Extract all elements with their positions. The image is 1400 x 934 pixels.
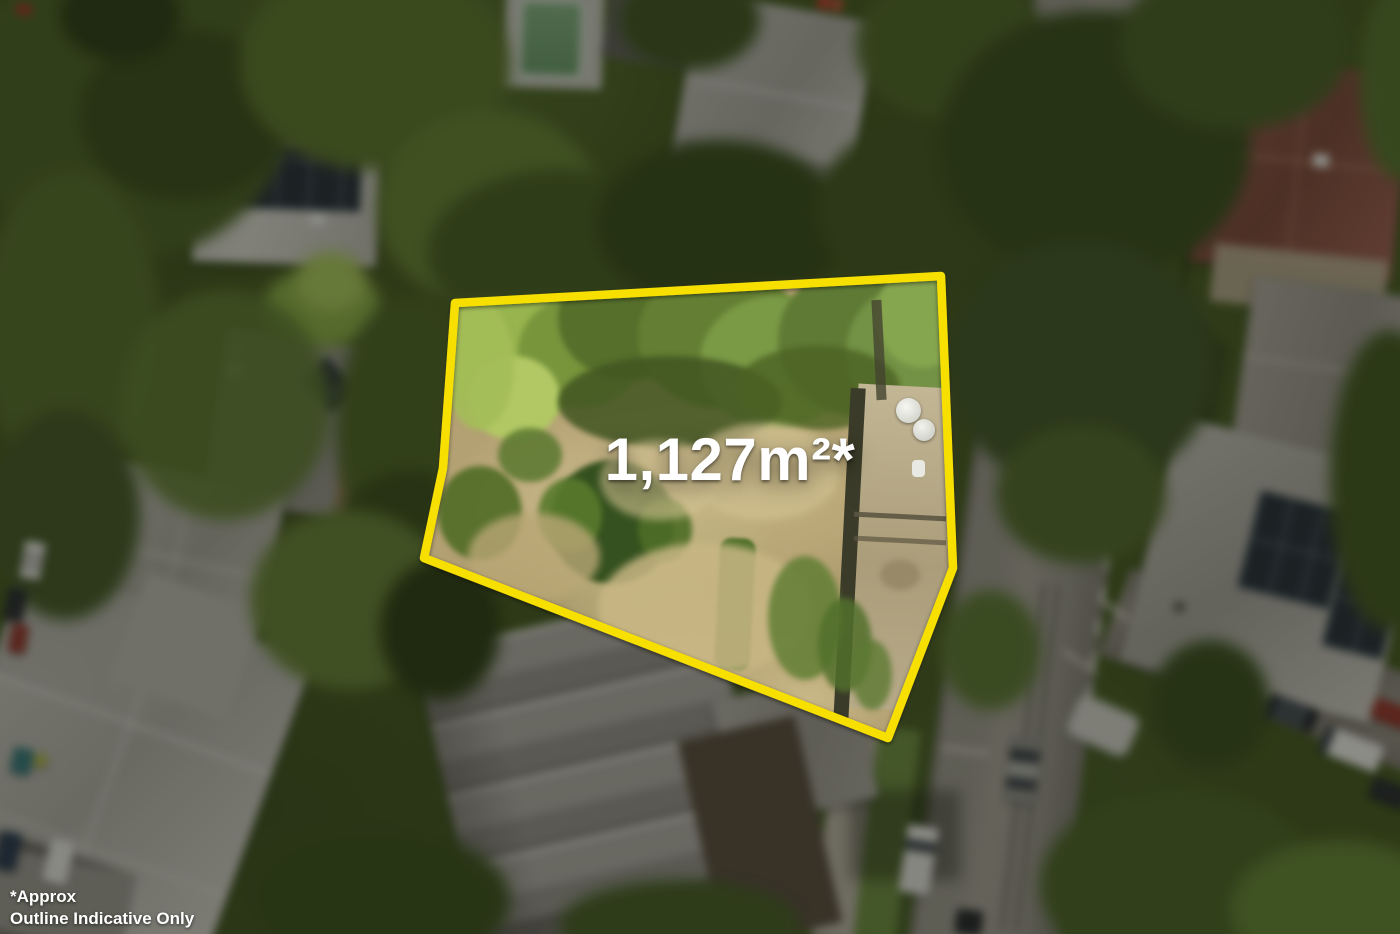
aerial-photo-canvas: 1,127m²* *Approx Outline Indicative Only <box>0 0 1400 934</box>
disclaimer-line2: Outline Indicative Only <box>10 908 194 930</box>
disclaimer: *Approx Outline Indicative Only <box>10 886 194 930</box>
lot-area-label: 1,127m²* <box>602 428 858 491</box>
disclaimer-line1: *Approx <box>10 886 194 908</box>
